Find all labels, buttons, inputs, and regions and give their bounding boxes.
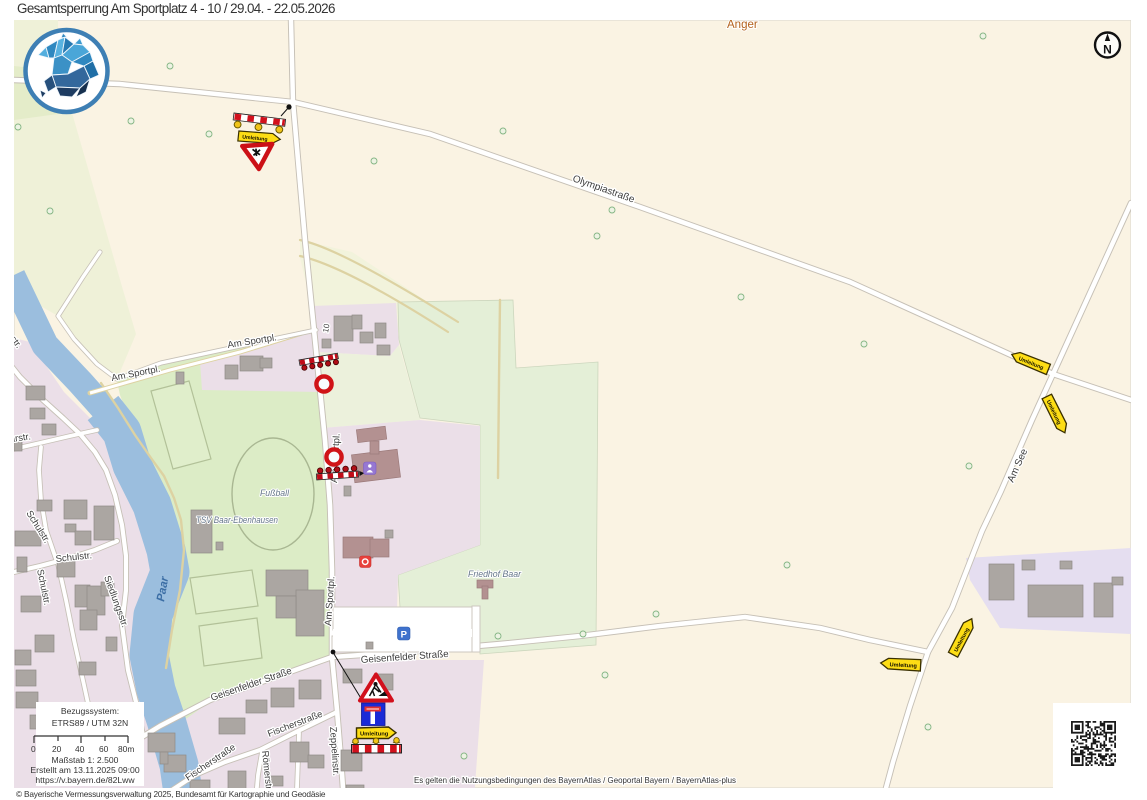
svg-text:TSV Baar-Ebenhausen: TSV Baar-Ebenhausen — [196, 515, 278, 525]
svg-text:P: P — [401, 630, 408, 641]
svg-text:Friedhof Baar: Friedhof Baar — [468, 569, 522, 579]
svg-text:Bezugssystem:: Bezugssystem: — [61, 706, 119, 716]
svg-text:Fußball: Fußball — [260, 488, 290, 498]
svg-text:Umleitung: Umleitung — [360, 732, 389, 738]
svg-text:Anger: Anger — [727, 20, 758, 31]
svg-text:80m: 80m — [118, 744, 134, 754]
svg-text:N: N — [1103, 43, 1112, 57]
svg-text:Erstellt am 13.11.2025 09:00: Erstellt am 13.11.2025 09:00 — [30, 765, 139, 775]
svg-text:Maßstab 1: 2.500: Maßstab 1: 2.500 — [52, 755, 119, 765]
svg-text:40: 40 — [75, 744, 85, 754]
svg-text:60: 60 — [99, 744, 109, 754]
svg-text:Es gelten die Nutzungsbedingun: Es gelten die Nutzungsbedingungen des Ba… — [414, 776, 736, 785]
svg-text:ETRS89 / UTM 32N: ETRS89 / UTM 32N — [52, 718, 128, 728]
svg-text:https://v.bayern.de/82Lww: https://v.bayern.de/82Lww — [35, 775, 135, 785]
svg-text:0: 0 — [31, 744, 36, 754]
svg-text:20: 20 — [52, 744, 62, 754]
